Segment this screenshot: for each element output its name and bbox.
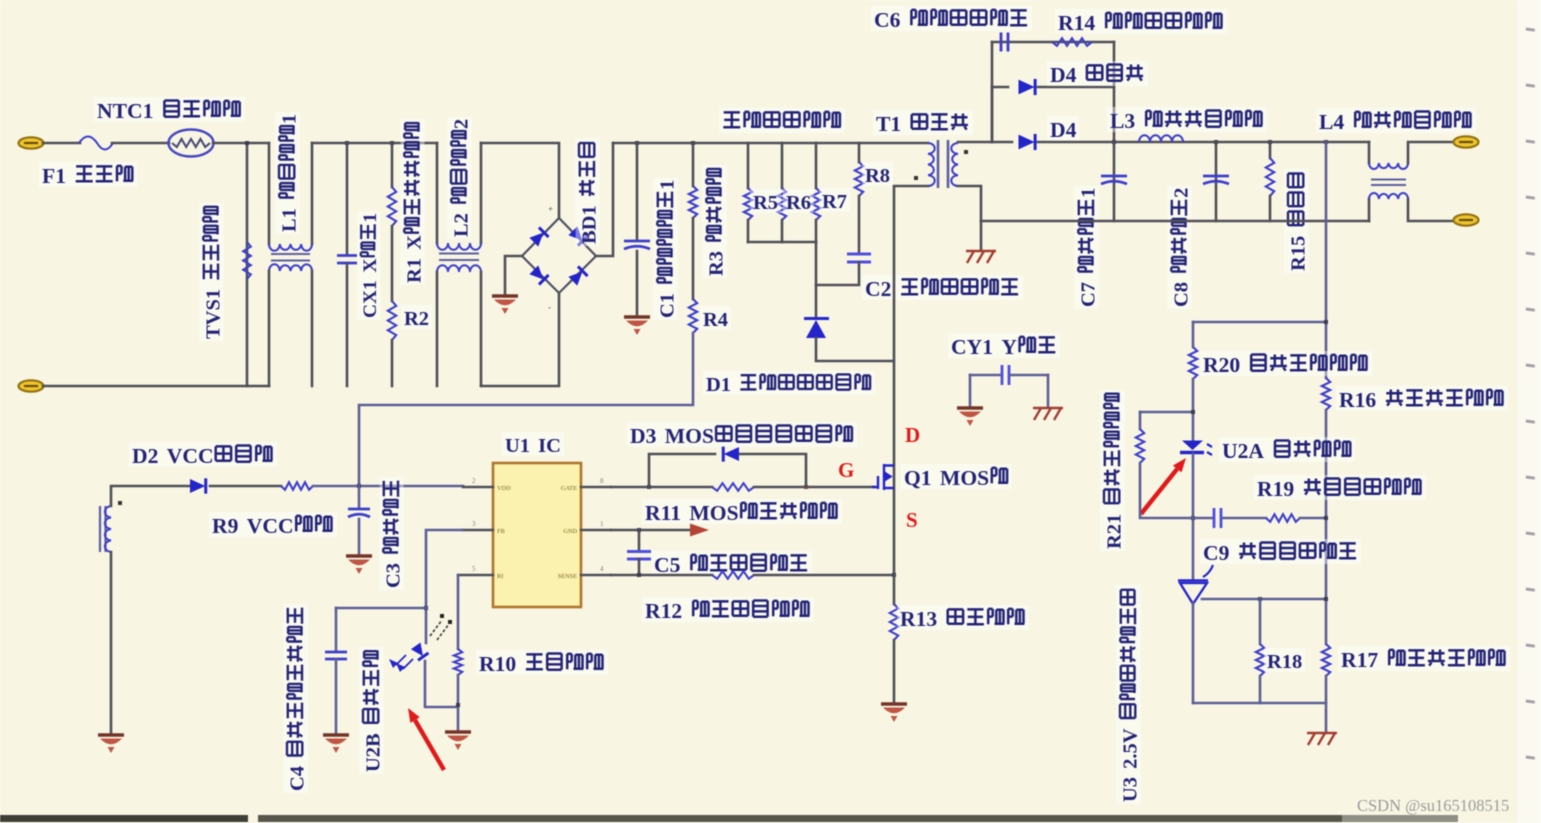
svg-text:4: 4 — [600, 565, 604, 573]
svg-text:R1: R1 — [404, 258, 426, 283]
svg-text:R11: R11 — [645, 501, 681, 525]
svg-text:VCC: VCC — [167, 444, 214, 468]
svg-text:2: 2 — [472, 477, 476, 485]
svg-text:L2: L2 — [451, 213, 473, 237]
svg-text:CX1: CX1 — [360, 280, 381, 318]
svg-text:MOS: MOS — [689, 501, 738, 525]
svg-text:C7: C7 — [1078, 282, 1100, 307]
svg-text:2: 2 — [1171, 188, 1193, 198]
svg-text:X: X — [404, 235, 426, 250]
svg-text:R17: R17 — [1341, 648, 1378, 672]
svg-text:R10: R10 — [479, 652, 516, 676]
svg-text:C5: C5 — [654, 553, 680, 577]
svg-text:SENSE: SENSE — [558, 573, 577, 580]
svg-text:IC: IC — [538, 435, 561, 457]
svg-text:C8: C8 — [1171, 282, 1193, 307]
svg-text:Y: Y — [1001, 335, 1017, 359]
svg-text:Q1: Q1 — [904, 466, 932, 490]
svg-text:L4: L4 — [1319, 110, 1344, 134]
svg-text:C9: C9 — [1203, 541, 1230, 565]
svg-text:S: S — [906, 508, 918, 532]
svg-text:R19: R19 — [1257, 477, 1294, 501]
svg-text:R12: R12 — [645, 599, 682, 623]
svg-text:CSDN @su165108515: CSDN @su165108515 — [1357, 796, 1509, 815]
svg-text:D2: D2 — [132, 444, 158, 468]
svg-text:C6: C6 — [874, 8, 901, 32]
svg-text:MOS: MOS — [665, 424, 714, 448]
svg-text:C1: C1 — [657, 293, 679, 318]
svg-text:VDD: VDD — [497, 485, 511, 492]
svg-text:U2B: U2B — [363, 733, 385, 772]
svg-text:D3: D3 — [630, 424, 657, 448]
svg-text:D4: D4 — [1050, 63, 1077, 87]
svg-text:R16: R16 — [1339, 388, 1376, 412]
svg-text:C2: C2 — [865, 277, 891, 301]
svg-text:D: D — [905, 423, 920, 447]
svg-text:GATE: GATE — [561, 485, 577, 492]
svg-text:2.5V: 2.5V — [1120, 728, 1142, 769]
svg-text:8: 8 — [600, 477, 604, 485]
svg-text:2: 2 — [451, 119, 473, 129]
svg-text:T1: T1 — [876, 112, 901, 136]
svg-text:1: 1 — [279, 114, 301, 124]
svg-text:1: 1 — [1078, 188, 1100, 198]
svg-text:MOS: MOS — [940, 466, 989, 490]
svg-text:F1: F1 — [42, 164, 66, 188]
svg-text:FB: FB — [497, 528, 505, 535]
svg-text:R8: R8 — [865, 165, 890, 187]
svg-text:R20: R20 — [1203, 353, 1240, 377]
svg-text:C4: C4 — [287, 766, 309, 791]
svg-text:R15: R15 — [1288, 236, 1310, 271]
svg-text:R13: R13 — [900, 607, 937, 631]
svg-text:R6: R6 — [786, 192, 811, 214]
svg-text:1: 1 — [657, 180, 679, 190]
svg-text:R3: R3 — [706, 251, 728, 276]
svg-text:GND: GND — [563, 528, 577, 535]
svg-text:G: G — [838, 458, 854, 482]
svg-text:VCC: VCC — [247, 514, 294, 538]
svg-text:3: 3 — [472, 520, 476, 528]
svg-text:R14: R14 — [1058, 11, 1095, 35]
svg-text:R4: R4 — [703, 309, 728, 331]
svg-text:+: + — [548, 204, 553, 214]
svg-text:U2A: U2A — [1222, 439, 1264, 463]
svg-text:X: X — [360, 259, 381, 273]
svg-text:R21: R21 — [1104, 514, 1126, 549]
svg-text:L3: L3 — [1110, 109, 1135, 133]
svg-text:R5: R5 — [753, 192, 778, 214]
svg-text:D4: D4 — [1050, 118, 1077, 142]
svg-text:U1: U1 — [505, 435, 530, 457]
svg-text:D1: D1 — [706, 374, 731, 396]
svg-text:-: - — [548, 302, 551, 312]
svg-text:L1: L1 — [279, 208, 301, 232]
svg-text:NTC1: NTC1 — [97, 99, 153, 123]
svg-text:R9: R9 — [212, 514, 239, 538]
svg-text:1: 1 — [360, 213, 381, 223]
svg-text:R7: R7 — [822, 191, 847, 213]
svg-text:U3: U3 — [1120, 777, 1142, 802]
svg-text:5: 5 — [472, 565, 476, 573]
svg-text:CY1: CY1 — [951, 335, 993, 359]
svg-text:R2: R2 — [404, 308, 429, 330]
svg-text:RI: RI — [497, 573, 503, 580]
svg-text:1: 1 — [600, 520, 604, 528]
svg-text:R18: R18 — [1267, 651, 1302, 673]
svg-text:TVS1: TVS1 — [203, 289, 225, 339]
svg-text:C3: C3 — [383, 563, 405, 588]
svg-text:BD1: BD1 — [579, 205, 601, 244]
